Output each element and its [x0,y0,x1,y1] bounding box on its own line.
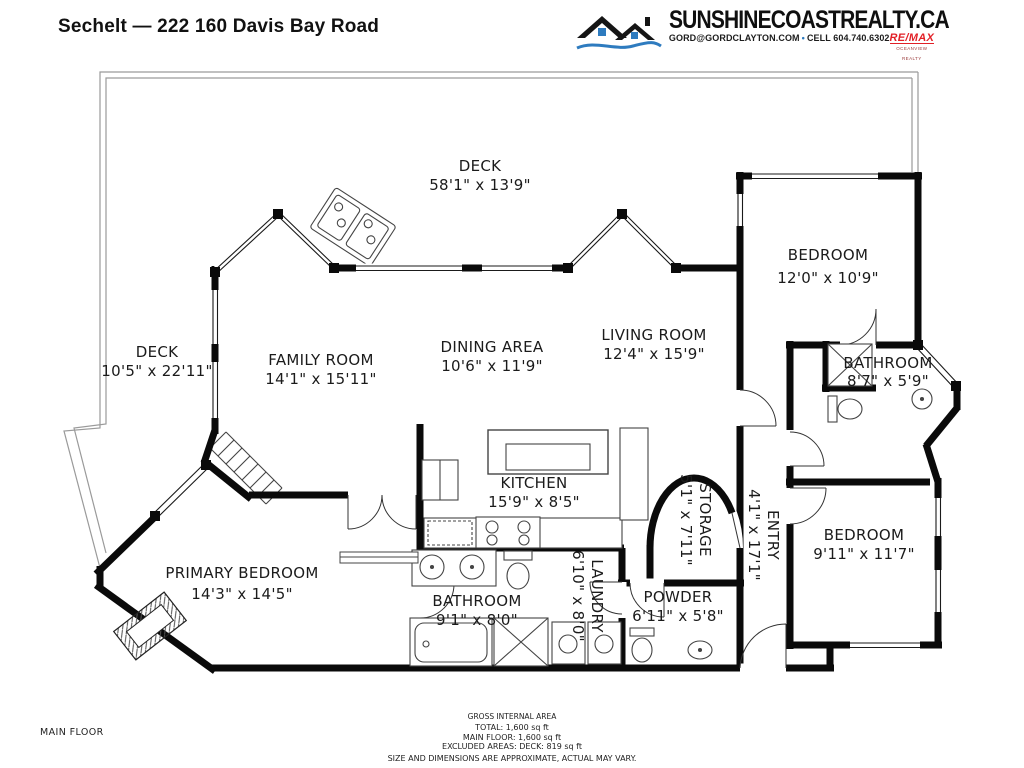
room-label-dining-area: DINING AREA 10'6" x 11'9" [441,338,544,375]
room-name: BEDROOM [824,526,904,544]
room-label-living-room: LIVING ROOM 12'4" x 15'9" [601,326,706,363]
room-name: BATHROOM [843,354,932,372]
room-name: POWDER [644,588,713,606]
room-label-bathroom-lower: BATHROOM 9'1" x 8'0" [432,592,521,629]
footer-notes: GROSS INTERNAL AREA TOTAL: 1,600 sq ft M… [0,712,1024,763]
footer-gross-area: GROSS INTERNAL AREA [0,712,1024,721]
brand-email: GORD@GORDCLAYTON.COM [669,33,800,43]
brand-phone: CELL 604.740.6302 [807,33,890,43]
floor-plan: DECK 58'1" x 13'9" DECK 10'5" x 22'11" F… [0,0,1024,768]
footer-excluded: EXCLUDED AREAS: DECK: 819 sq ft [0,742,1024,752]
room-label-entry: ENTRY 4'1" x 17'1" [745,489,782,581]
room-name: BATHROOM [432,592,521,610]
room-dims: 58'1" x 13'9" [429,176,531,194]
room-label-powder: POWDER 6'11" x 5'8" [632,588,724,625]
room-label-deck-left: DECK 10'5" x 22'11" [101,343,212,380]
room-dims: 6'11" x 5'8" [632,607,724,625]
brand-contact: GORD@GORDCLAYTON.COM•CELL 604.740.6302 [669,33,890,43]
room-dims: 9'1" x 8'0" [436,611,518,629]
room-name: DECK [459,157,502,175]
room-dims: 5'1" x 7'11" [677,474,695,566]
brand-text: SUNSHINECOASTREALTY.CA GORD@GORDCLAYTON.… [669,8,1002,64]
powder-fixtures [630,628,712,662]
floor-plan-page: Sechelt — 222 160 Davis Bay Road SUNSHIN… [0,0,1024,768]
room-dims: 4'1" x 17'1" [745,489,763,581]
room-dims: 12'0" x 10'9" [777,269,879,287]
brand-site: SUNSHINECOASTREALTY.CA [669,8,949,32]
room-dims: 8'7" x 5'9" [847,372,929,390]
room-name: LAUNDRY [588,559,606,633]
footer-disclaimer: SIZE AND DIMENSIONS ARE APPROXIMATE, ACT… [0,754,1024,763]
room-name: KITCHEN [500,474,567,492]
room-label-bedroom-lower: BEDROOM 9'11" x 11'7" [813,526,915,563]
footer-main-floor: MAIN FLOOR: 1,600 sq ft [0,733,1024,743]
brand-logo: SUNSHINECOASTREALTY.CA GORD@GORDCLAYTON.… [575,8,1002,64]
room-dims: 6'10" x 8'0" [569,550,587,642]
remax-sub: OCEANVIEW REALTY [890,44,935,64]
room-label-deck-top: DECK 58'1" x 13'9" [429,157,531,194]
room-dims: 12'4" x 15'9" [603,345,705,363]
room-label-storage: STORAGE 5'1" x 7'11" [677,474,714,566]
footer-total: TOTAL: 1,600 sq ft [0,723,1024,733]
room-name: LIVING ROOM [601,326,706,344]
remax-name: RE/MAX [890,33,935,44]
room-name: FAMILY ROOM [268,351,373,369]
room-dims: 15'9" x 8'5" [488,493,580,511]
room-label-primary-bedroom: PRIMARY BEDROOM 14'3" x 14'5" [165,564,318,603]
room-dims: 10'6" x 11'9" [441,357,543,375]
room-name: ENTRY [764,510,782,561]
room-name: STORAGE [696,483,714,557]
room-dims: 14'1" x 15'11" [265,370,376,388]
remax-badge: RE/MAX OCEANVIEW REALTY [890,33,935,64]
bullet-separator: • [802,33,805,43]
room-name: BEDROOM [788,246,868,264]
floor-level-label: MAIN FLOOR [40,727,104,738]
room-name: PRIMARY BEDROOM [165,564,318,582]
room-label-kitchen: KITCHEN 15'9" x 8'5" [488,474,580,511]
room-dims: 9'11" x 11'7" [813,545,915,563]
house-wave-icon [575,8,663,56]
room-name: DINING AREA [441,338,544,356]
room-label-bedroom-top: BEDROOM 12'0" x 10'9" [777,246,879,287]
room-label-laundry: LAUNDRY 6'10" x 8'0" [569,550,606,642]
room-label-bathroom-upper: BATHROOM 8'7" x 5'9" [843,354,932,390]
page-title: Sechelt — 222 160 Davis Bay Road [58,16,379,38]
room-label-family-room: FAMILY ROOM 14'1" x 15'11" [265,351,376,388]
room-dims: 10'5" x 22'11" [101,362,212,380]
primary-closet [340,552,418,563]
room-dims: 14'3" x 14'5" [191,585,293,603]
room-name: DECK [136,343,179,361]
brand-subrow: GORD@GORDCLAYTON.COM•CELL 604.740.6302 R… [669,33,931,64]
